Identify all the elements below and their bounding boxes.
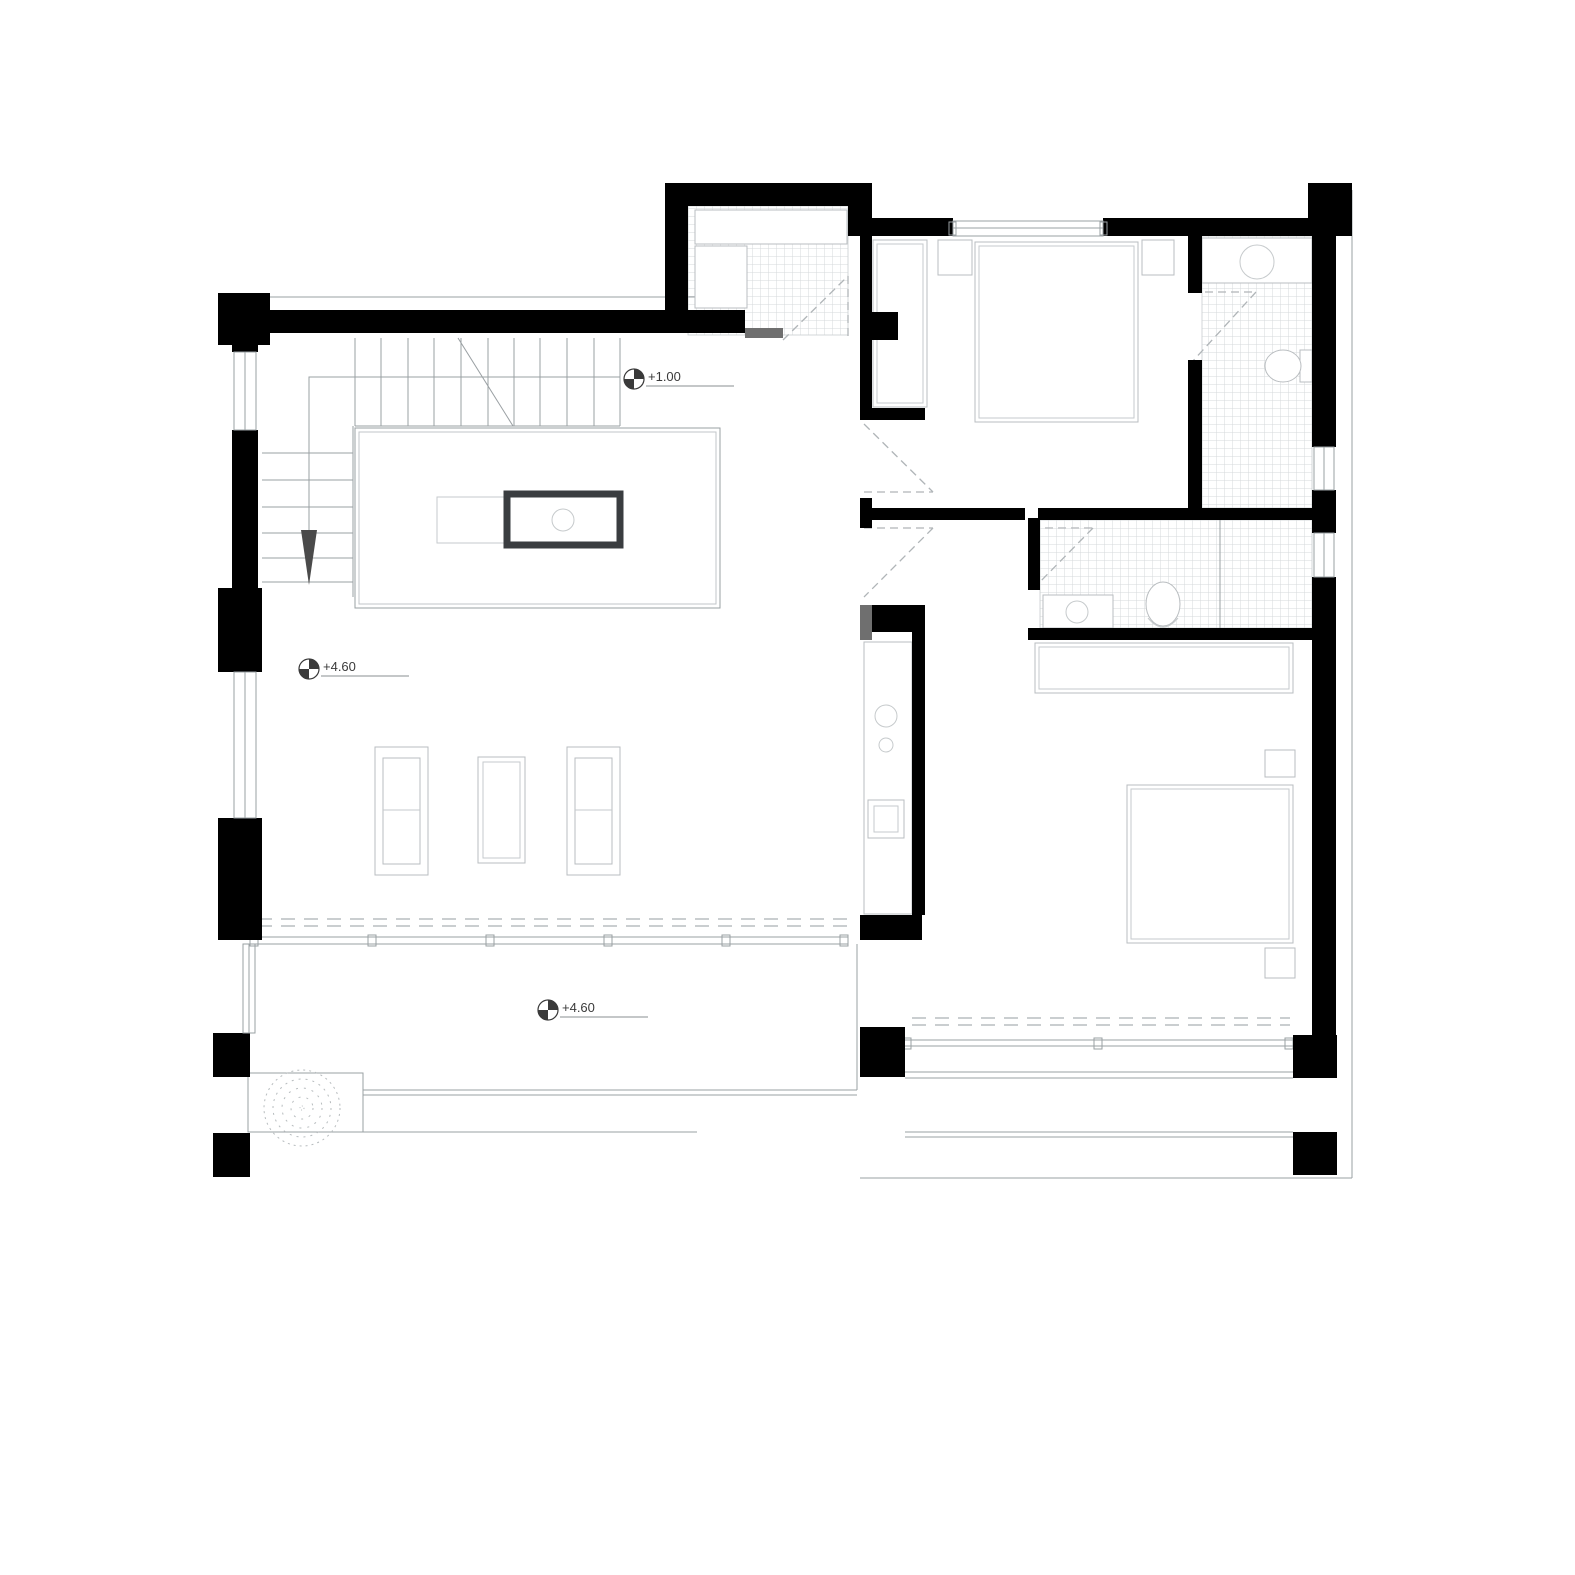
island-counter-below [437,497,507,543]
toilet-tank [1300,350,1312,382]
wardrobe [1035,643,1293,693]
nightstand [938,240,972,275]
nightstand [1265,750,1295,777]
planter-box [248,1073,363,1132]
bedroom-1-furniture [873,240,1174,422]
corridor-door-swing [864,528,933,597]
floor-plan-drawing: +1.00 +4.60 +4.60 [0,0,1575,1575]
living-sliding-door [258,919,848,926]
bedroom-1-door-swing [864,424,933,492]
window-bedroom-1 [949,221,1107,236]
tree-icon [264,1070,340,1146]
stair-walk-line [309,377,620,582]
toilet [1265,350,1301,382]
entry-door-leaf [745,328,783,338]
level-value: +1.00 [648,369,681,384]
kitchen [864,642,912,914]
stair-treads-upper-run [355,338,620,426]
level-marker-stair: +1.00 [624,369,734,389]
lounge-chair [375,747,428,875]
bedroom-2-sliding-door [912,1018,1290,1025]
staircase [262,338,620,597]
living-glazing-track [250,937,848,944]
void-over-kitchen [355,428,720,608]
bed [1127,785,1293,943]
bedroom2-glazing-track [905,1040,1293,1046]
nightstand [1265,948,1295,978]
level-value: +4.60 [562,1000,595,1015]
bed [975,242,1138,422]
window-left-terrace [243,944,255,1033]
washbasin-cabinet [695,246,747,308]
floor-plan-page: +1.00 +4.60 +4.60 [0,0,1575,1575]
kitchen-island-skylight [507,494,620,545]
window-bathroom-2 [1314,533,1334,577]
living-area-furniture [375,747,620,875]
window-left-upper [234,352,256,430]
toilet [1146,582,1180,626]
bedroom-2-furniture [1035,643,1295,978]
level-marker-terrace: +4.60 [538,1000,648,1020]
terrace-2-edges [860,1072,1352,1178]
corridor-door-leaf [860,605,872,640]
level-marker-living: +4.60 [299,659,409,679]
window-bathroom-1 [1314,447,1334,490]
kitchen-counter [864,642,912,914]
stair-break-line [458,338,513,426]
nightstand [1142,240,1174,275]
level-value: +4.60 [323,659,356,674]
side-table [478,757,525,863]
shower-tray [695,210,847,244]
window-left-living [234,672,256,818]
lounge-chair [567,747,620,875]
